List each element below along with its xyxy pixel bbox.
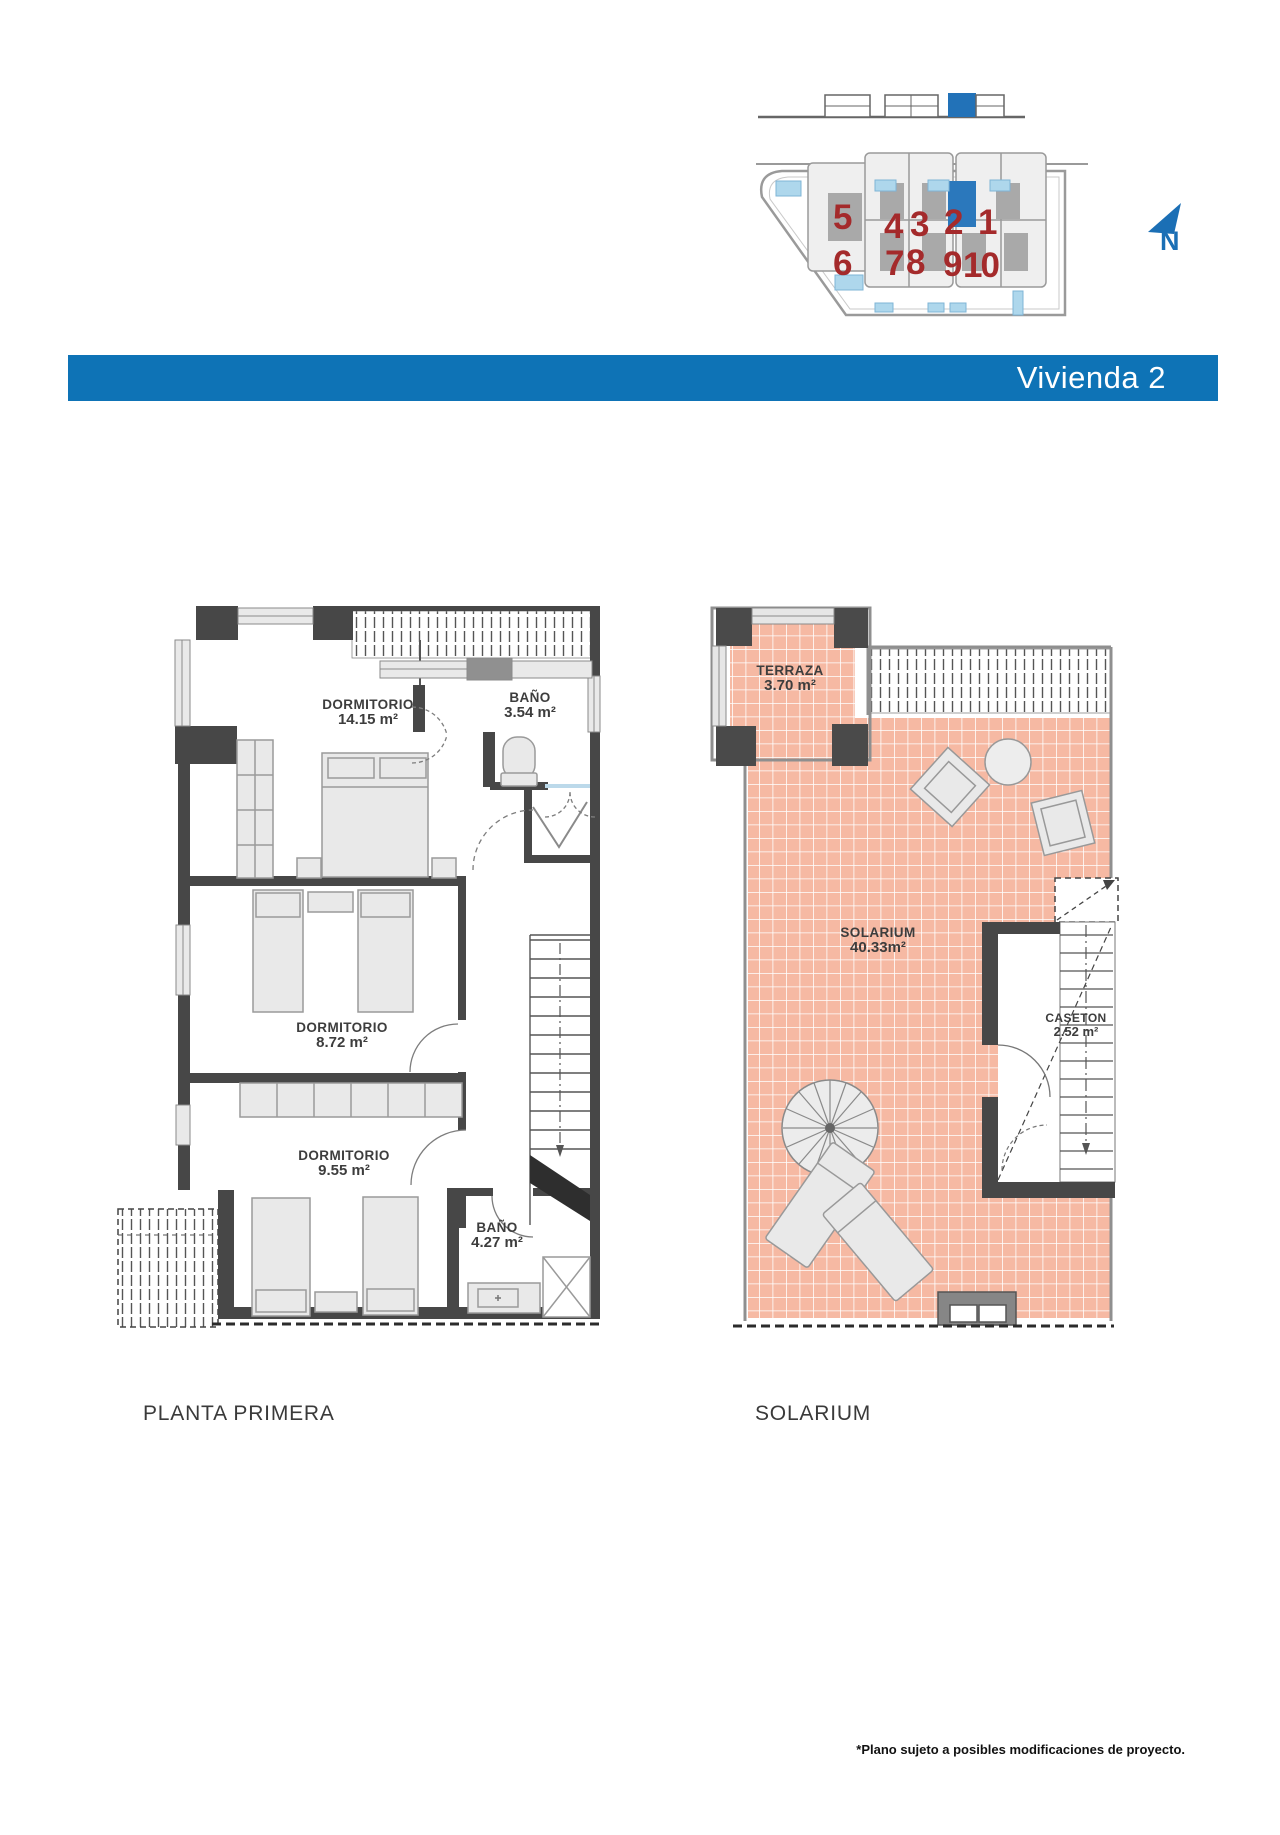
title-bar: Vivienda 2 [68,355,1218,401]
site-plan-figure [640,75,1220,345]
highlighted-unit-elevation [948,93,976,117]
room-area: 14.15 m² [322,712,414,729]
shower-sill [545,784,590,788]
single-bed [358,890,413,1012]
wardrobe [237,740,273,878]
room-area: 9.55 m² [298,1163,390,1180]
double-bed [322,753,428,877]
room-label-dormitorio-1: DORMITORIO 14.15 m² [322,697,414,729]
room-label-solarium: SOLARIUM 40.33m² [840,925,915,957]
room-label-caseton: CASETON 2.52 m² [1045,1012,1106,1040]
furniture [237,737,590,1317]
site-unit-10: 10 [963,248,998,283]
nightstand [297,858,321,878]
room-name: BAÑO [471,1220,523,1235]
caption-planta-primera: PLANTA PRIMERA [143,1402,335,1426]
elevation-strip [758,93,1025,117]
nightstand [432,858,456,878]
closet-row [240,1083,462,1117]
room-name: BAÑO [504,690,556,705]
room-area: 40.33m² [840,940,915,957]
room-area: 3.54 m² [504,705,556,722]
room-area: 8.72 m² [296,1035,388,1052]
site-unit-7: 7 [885,246,904,281]
room-label-bano-2: BAÑO 4.27 m² [471,1220,523,1252]
terrace-hatch [118,1209,218,1327]
site-unit-5: 5 [833,200,852,235]
nightstand [315,1292,357,1312]
nightstand [308,892,353,912]
room-name: TERRAZA [756,663,823,678]
single-bed [363,1197,418,1315]
toilet [501,737,537,786]
site-unit-2: 2 [944,205,963,240]
room-name: DORMITORIO [322,697,414,712]
single-bed [253,890,303,1012]
disclaimer-note: *Plano sujeto a posibles modificaciones … [856,1742,1185,1757]
north-label: N [1160,226,1180,257]
room-name: DORMITORIO [296,1020,388,1035]
pergola-hatch [352,611,592,658]
room-label-terraza: TERRAZA 3.70 m² [756,663,823,695]
solarium-figure [705,595,1120,1340]
site-unit-8: 8 [906,245,925,280]
site-unit-6: 6 [833,246,852,281]
plan-sheet: 5 4 3 2 1 6 7 8 9 10 N Vivienda 2 [0,0,1280,1835]
site-unit-4: 4 [884,209,903,244]
shower-symbol [533,802,587,847]
room-label-dormitorio-3: DORMITORIO 9.55 m² [298,1148,390,1180]
room-label-dormitorio-2: DORMITORIO 8.72 m² [296,1020,388,1052]
page-title: Vivienda 2 [1017,360,1218,396]
room-area: 2.52 m² [1045,1025,1106,1040]
room-name: CASETON [1045,1012,1106,1025]
site-unit-1: 1 [978,205,997,240]
caption-solarium: SOLARIUM [755,1402,871,1426]
room-area: 4.27 m² [471,1235,523,1252]
single-bed [252,1198,310,1316]
round-table [985,739,1031,785]
sink [468,1283,540,1313]
shower-tray [543,1257,590,1317]
staircase [530,935,590,1225]
site-unit-9: 9 [943,247,962,282]
room-name: SOLARIUM [840,925,915,940]
room-label-bano-1: BAÑO 3.54 m² [504,690,556,722]
site-unit-3: 3 [910,207,929,242]
room-area: 3.70 m² [756,678,823,695]
pergola-hatch [870,649,1110,713]
chimney-box [938,1292,1016,1325]
room-name: DORMITORIO [298,1148,390,1163]
